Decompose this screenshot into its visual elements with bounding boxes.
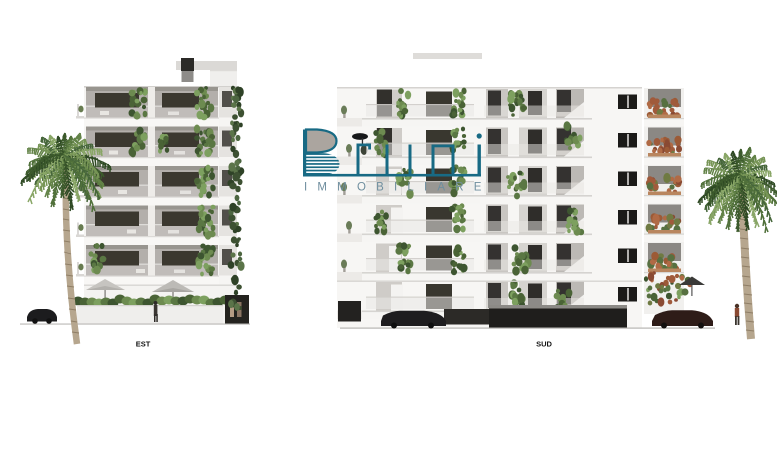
svg-text:SUD: SUD <box>536 340 552 349</box>
svg-text:EST: EST <box>136 340 151 349</box>
svg-text:IMMOBILIARE: IMMOBILIARE <box>304 182 492 194</box>
